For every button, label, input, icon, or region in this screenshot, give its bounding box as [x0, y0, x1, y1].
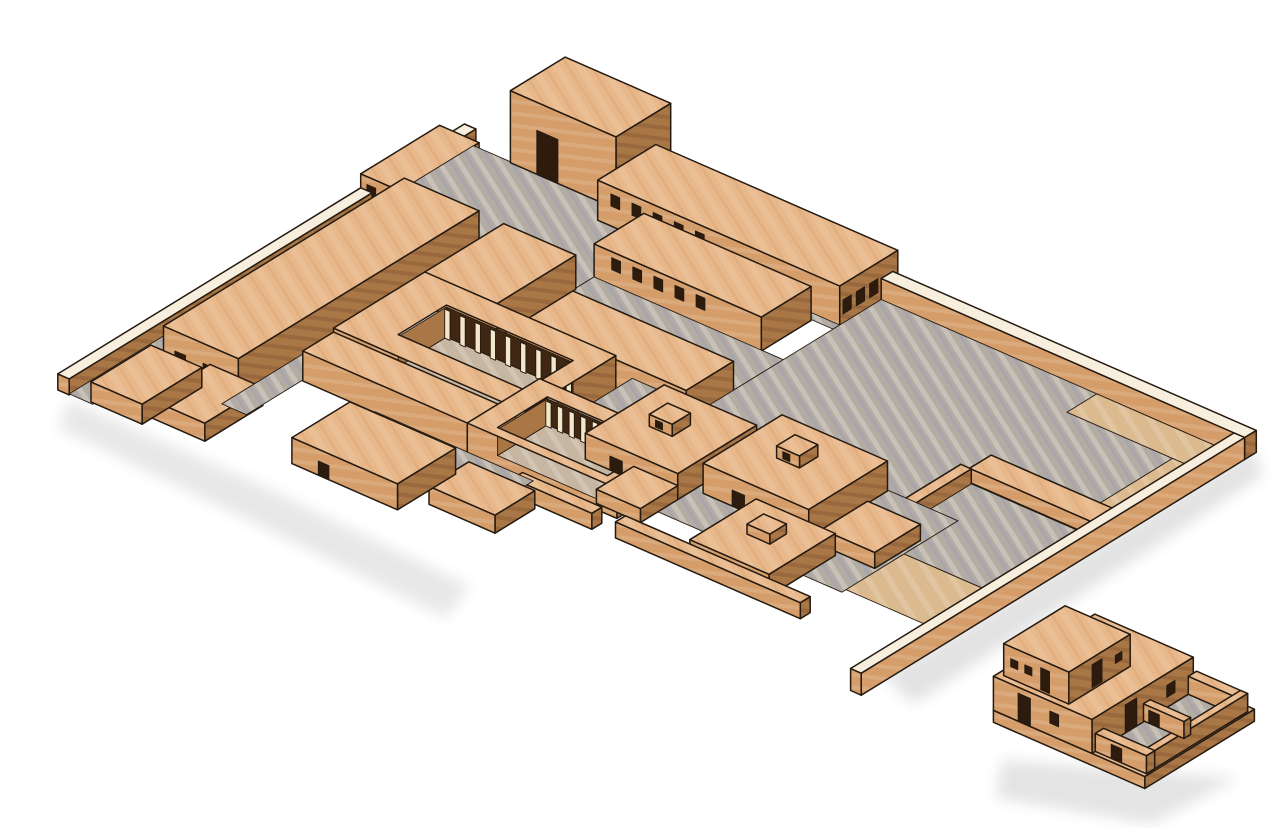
second-columned-court-column-1	[557, 406, 562, 433]
first-columned-court-column-3	[490, 329, 495, 360]
canvas	[0, 0, 1280, 828]
detached-house	[993, 606, 1254, 824]
first-columned-court-column-1	[460, 316, 465, 347]
first-columned-court-column-4	[505, 336, 510, 367]
second-columned-court-column-0	[546, 401, 551, 428]
reconstruction-illustration	[0, 0, 1280, 828]
house-main-story-opening-0	[1018, 693, 1030, 726]
main-complex	[58, 57, 1262, 704]
house-upper-story-opening-2	[1041, 668, 1050, 694]
first-columned-court-column-2	[475, 322, 480, 353]
second-columned-court-column-2	[569, 411, 574, 438]
first-columned-court-column-6	[536, 349, 541, 380]
first-columned-court-column-5	[521, 342, 526, 373]
gatehouse-opening-0	[537, 130, 558, 183]
first-columned-court-column-0	[445, 309, 450, 340]
